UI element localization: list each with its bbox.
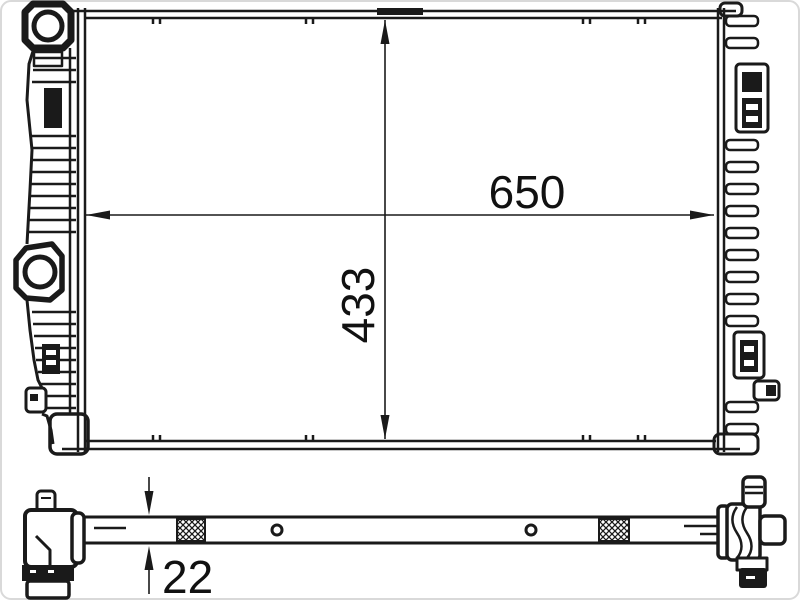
crosshatch-block-left: [177, 519, 205, 541]
inlet-elbow-fitting: [22, 491, 84, 598]
width-dimension: 650: [86, 166, 714, 220]
height-dimension-label: 433: [332, 267, 384, 344]
right-tank-foot: [714, 434, 758, 454]
right-tank-connector-lower: [734, 332, 764, 378]
hole-left: [272, 525, 282, 535]
outlet-fitting: [718, 477, 785, 588]
inlet-port-top: [25, 4, 71, 48]
left-tank-tab: [26, 388, 46, 412]
arrow-up-icon: [381, 20, 390, 44]
radiator-bottom-view: 22: [22, 477, 785, 600]
inlet-port-middle: [16, 244, 62, 300]
height-dimension: 433: [332, 20, 390, 439]
radiator-technical-drawing: 650 433: [0, 0, 800, 600]
image-frame-border: [1, 1, 799, 599]
crosshatch-block-right: [599, 519, 629, 541]
thickness-dimension-label: 22: [162, 551, 213, 600]
right-tank-tab: [754, 381, 779, 400]
radiator-front-view: 650 433: [16, 3, 779, 454]
arrow-right-icon: [690, 211, 714, 220]
arrow-left-icon: [86, 211, 110, 220]
hole-right: [526, 525, 536, 535]
arrow-down-icon: [145, 491, 154, 515]
product-image: 650 433: [0, 0, 800, 600]
arrow-down-icon: [381, 415, 390, 439]
left-tank-block-upper: [44, 88, 62, 128]
top-edge-bracket: [377, 8, 423, 15]
right-tank-connector-upper: [736, 64, 768, 132]
arrow-up-icon: [145, 546, 154, 570]
core-panel: [62, 8, 740, 449]
left-tank-block-lower: [42, 344, 60, 374]
left-tank: [16, 4, 88, 454]
right-tank: [714, 3, 779, 454]
width-dimension-label: 650: [489, 166, 566, 218]
